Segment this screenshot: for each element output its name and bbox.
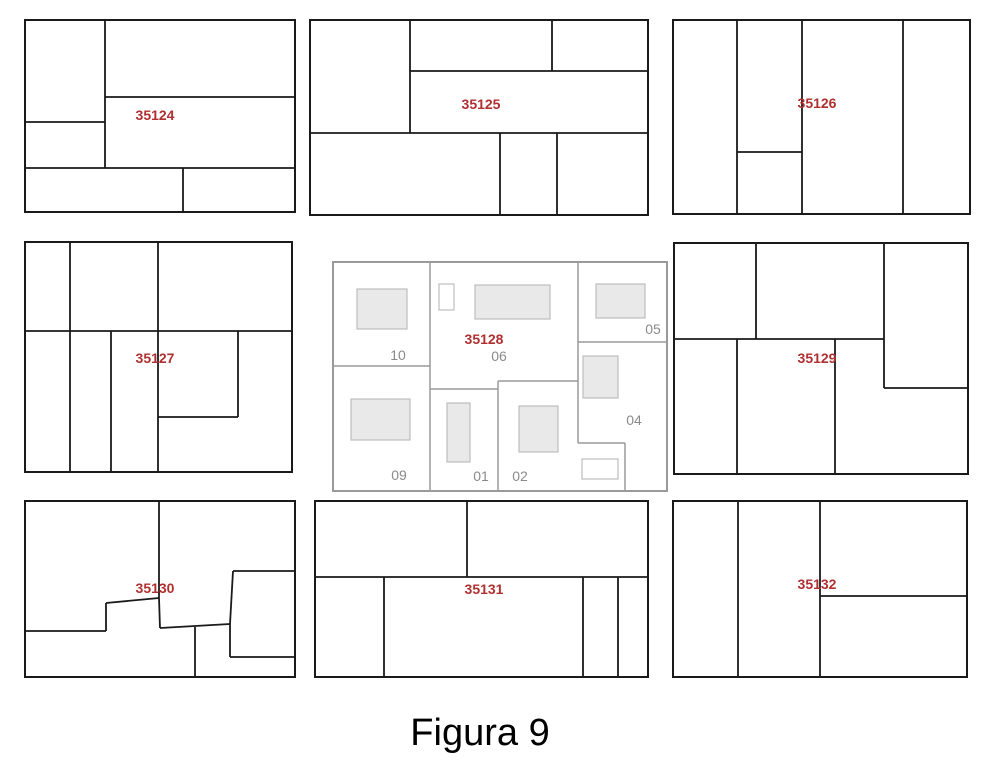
block-35128-parcel-number-04: 04 bbox=[626, 412, 642, 428]
block-35128-label: 35128 bbox=[465, 331, 504, 347]
block-35131: 35131 bbox=[315, 501, 648, 677]
blocks-diagram: 3512435125351263512735129351303513135132… bbox=[0, 0, 992, 777]
block-35130-label: 35130 bbox=[136, 580, 175, 596]
block-35128-parcel-number-10: 10 bbox=[390, 347, 406, 363]
block-35127-label: 35127 bbox=[136, 350, 175, 366]
block-35130-parcel-line bbox=[230, 571, 233, 624]
block-35128-parcel-number-09: 09 bbox=[391, 467, 407, 483]
block-35128-building bbox=[447, 403, 470, 462]
block-35128-building bbox=[357, 289, 407, 329]
block-35130-parcel-line bbox=[159, 598, 160, 628]
block-35129: 35129 bbox=[674, 243, 968, 474]
block-35131-label: 35131 bbox=[465, 581, 504, 597]
block-35125-label: 35125 bbox=[462, 96, 501, 112]
block-35125-outline bbox=[310, 20, 648, 215]
block-35125: 35125 bbox=[310, 20, 648, 215]
block-35128-building bbox=[583, 356, 618, 398]
figure-caption: Figura 9 bbox=[0, 712, 960, 755]
block-35132-label: 35132 bbox=[798, 576, 837, 592]
block-35128-parcel-number-05: 05 bbox=[645, 321, 661, 337]
block-35128-building bbox=[475, 285, 550, 319]
block-35132: 35132 bbox=[673, 501, 967, 677]
block-35127: 35127 bbox=[25, 242, 292, 472]
block-35130: 35130 bbox=[25, 501, 295, 677]
block-35128: 1006050409010235128 bbox=[333, 262, 667, 491]
block-35124-label: 35124 bbox=[136, 107, 175, 123]
block-35128-parcel-number-06: 06 bbox=[491, 348, 507, 364]
figure-canvas: 3512435125351263512735129351303513135132… bbox=[0, 0, 992, 777]
block-35124: 35124 bbox=[25, 20, 295, 212]
block-35128-parcel-number-01: 01 bbox=[473, 468, 489, 484]
block-35128-building bbox=[582, 459, 618, 479]
block-35126-label: 35126 bbox=[798, 95, 837, 111]
block-35130-parcel-line bbox=[106, 598, 159, 603]
block-35126: 35126 bbox=[673, 20, 970, 214]
block-35128-building bbox=[439, 284, 454, 310]
block-35128-building bbox=[519, 406, 558, 452]
block-35128-building bbox=[351, 399, 410, 440]
block-35128-building bbox=[596, 284, 645, 318]
block-35126-outline bbox=[673, 20, 970, 214]
block-35128-parcel-number-02: 02 bbox=[512, 468, 528, 484]
block-35129-label: 35129 bbox=[798, 350, 837, 366]
